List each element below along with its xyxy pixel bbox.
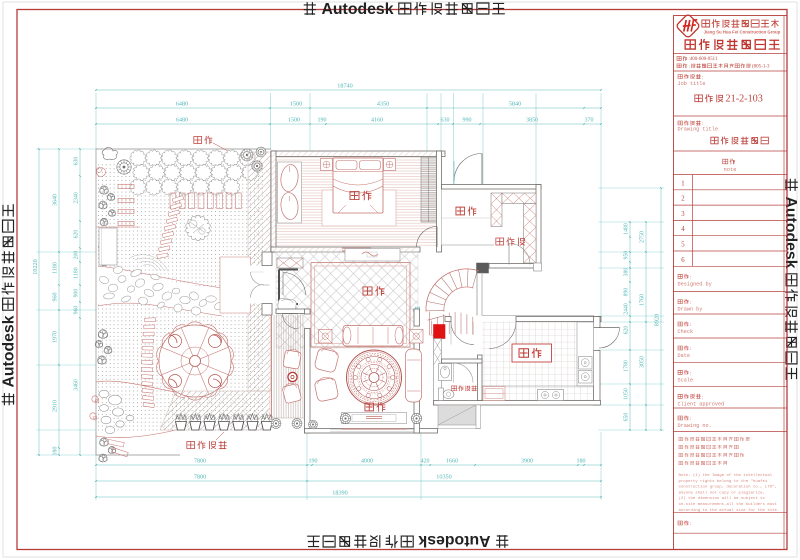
svg-text:3640: 3640: [53, 194, 59, 206]
svg-text:3900: 3900: [521, 458, 533, 464]
svg-text:7800: 7800: [194, 473, 206, 480]
svg-text:2340: 2340: [74, 192, 80, 204]
svg-text:1180: 1180: [53, 262, 59, 274]
svg-text:1480: 1480: [624, 223, 630, 235]
svg-text:Drawn by: Drawn by: [678, 307, 703, 313]
svg-text:1970: 1970: [53, 331, 59, 343]
svg-text:10220: 10220: [32, 259, 39, 274]
svg-text:380: 380: [624, 268, 630, 277]
svg-text:1: 1: [681, 180, 684, 187]
svg-text:2440: 2440: [624, 303, 630, 315]
svg-text:Drawing title: Drawing title: [678, 127, 718, 133]
svg-text:Autodesk: Autodesk: [322, 1, 394, 18]
svg-text:1660: 1660: [446, 458, 458, 464]
svg-text:7800: 7800: [194, 458, 206, 464]
svg-text:according to the actual size f: according to the actual size for the sit…: [679, 508, 780, 513]
svg-text:Designed by: Designed by: [678, 281, 712, 287]
svg-text:2750: 2750: [640, 231, 646, 243]
svg-text:1760: 1760: [640, 294, 646, 306]
svg-text:Date: Date: [678, 353, 690, 359]
svg-text:180: 180: [577, 458, 586, 464]
svg-text:Check: Check: [678, 329, 694, 335]
svg-text:620: 620: [74, 230, 80, 239]
svg-text:Autodesk: Autodesk: [418, 532, 490, 549]
svg-text:Scale: Scale: [678, 377, 694, 383]
svg-text:Drawing no.: Drawing no.: [678, 423, 712, 429]
svg-text:1780: 1780: [624, 360, 630, 372]
svg-text:21-2-103: 21-2-103: [726, 94, 763, 105]
svg-text:180: 180: [53, 447, 59, 456]
svg-text:1500: 1500: [288, 117, 300, 123]
svg-text:4160: 4160: [371, 117, 383, 123]
svg-text:18740: 18740: [337, 82, 352, 89]
svg-text:5: 5: [681, 242, 685, 249]
svg-text:(805-1-3: (805-1-3: [752, 65, 770, 70]
svg-text:650: 650: [624, 413, 630, 422]
svg-text:8920: 8920: [654, 314, 661, 326]
svg-text:on-site measurement,all the bu: on-site measurement,all the builders mus…: [679, 502, 777, 507]
svg-text:960: 960: [53, 293, 59, 302]
svg-text:property rights belong to the: property rights belong to the "huafei: [679, 479, 768, 484]
svg-text:6480: 6480: [176, 100, 188, 107]
svg-text:630: 630: [441, 117, 450, 123]
svg-text:3050: 3050: [640, 356, 646, 368]
svg-text:3850: 3850: [526, 117, 538, 123]
svg-text:3460: 3460: [74, 379, 80, 391]
svg-text:6: 6: [681, 257, 685, 264]
svg-text:1500: 1500: [290, 100, 302, 107]
svg-text:10350: 10350: [436, 473, 451, 480]
svg-text:1050: 1050: [624, 388, 630, 400]
svg-text:2: 2: [681, 196, 685, 203]
svg-text:5840: 5840: [509, 100, 521, 107]
svg-text:Jiang Su Hua Fei Construction: Jiang Su Hua Fei Construction Group: [704, 30, 781, 35]
svg-text:2910: 2910: [53, 400, 59, 412]
svg-text:6480: 6480: [176, 117, 188, 123]
svg-text:630: 630: [74, 157, 80, 166]
svg-text:4350: 4350: [377, 100, 389, 107]
svg-text:Client approved: Client approved: [678, 401, 725, 407]
svg-text:370: 370: [585, 117, 594, 123]
svg-text:990: 990: [463, 117, 472, 123]
svg-text:4: 4: [681, 226, 685, 233]
svg-text:190: 190: [318, 117, 327, 123]
svg-text:18390: 18390: [332, 489, 347, 496]
svg-text:anyone shall not copy or plagi: anyone shall not copy or plagiarize,: [679, 490, 765, 495]
svg-text:note: note: [724, 167, 737, 173]
svg-text:Autodesk: Autodesk: [1, 315, 18, 387]
svg-text:890: 890: [624, 288, 630, 297]
svg-text:900: 900: [74, 289, 80, 298]
svg-text:4000: 4000: [361, 458, 373, 464]
svg-text:(2) the dimension will be subj: (2) the dimension will be subject to: [679, 496, 766, 501]
svg-text:construction group, decoration: construction group, decoration co., LTD"…: [679, 485, 777, 490]
svg-text::400-600-0511: :400-600-0511: [689, 57, 718, 62]
svg-text:620: 620: [624, 326, 630, 335]
svg-text:3: 3: [681, 211, 685, 218]
svg-text:Autodesk: Autodesk: [782, 197, 799, 269]
svg-text:Job title: Job title: [678, 81, 706, 87]
svg-text:190: 190: [309, 458, 318, 464]
svg-text:1180: 1180: [74, 267, 80, 278]
svg-text:Note: (1) the Image of the int: Note: (1) the Image of the intellectual: [679, 473, 773, 478]
svg-text:420: 420: [421, 458, 430, 464]
